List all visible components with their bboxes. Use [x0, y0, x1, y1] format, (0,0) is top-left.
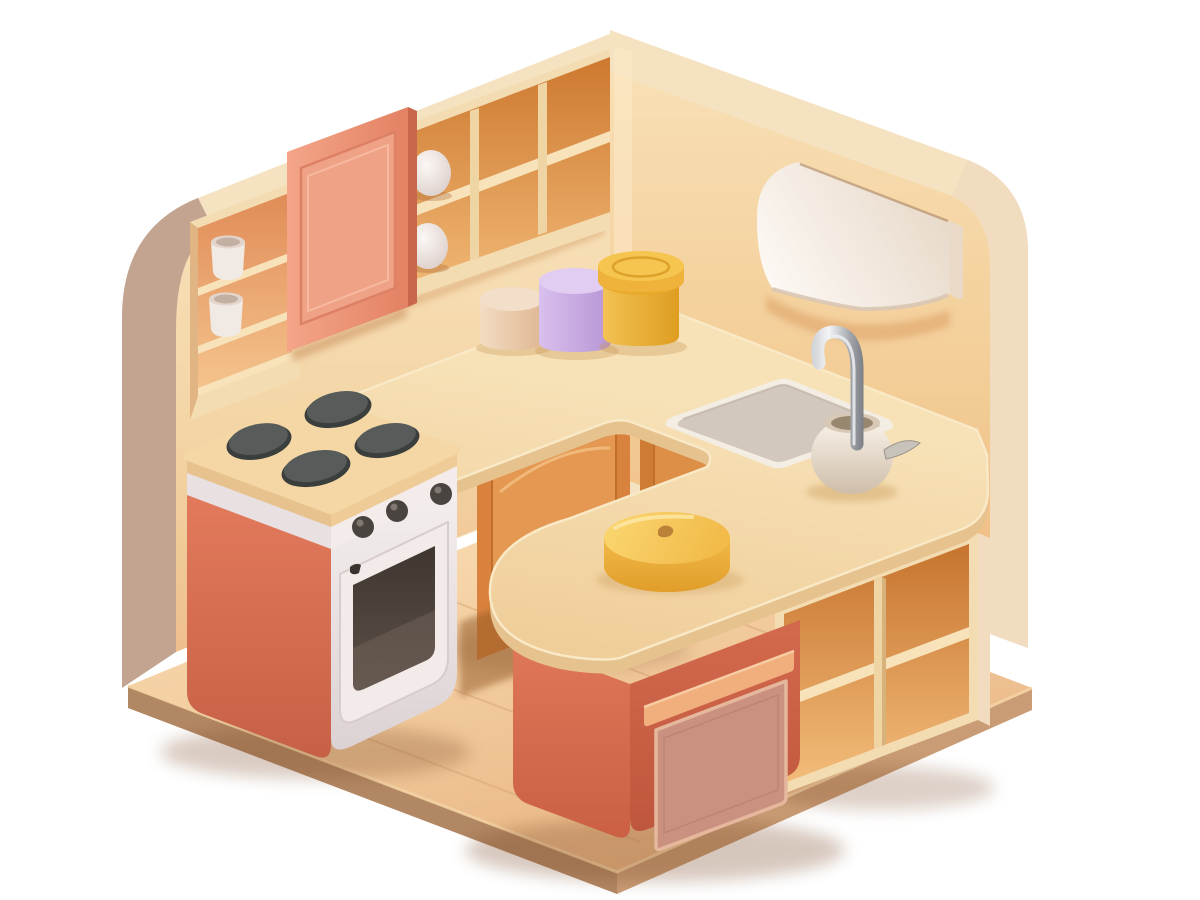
- wall-cabinet-door: [287, 107, 417, 356]
- cubby-side-panel: [978, 533, 990, 726]
- hood-side-face: [950, 221, 963, 299]
- knob: [352, 516, 374, 538]
- knob-highlight: [357, 520, 364, 527]
- cake-top: [604, 512, 730, 564]
- knob: [386, 500, 408, 522]
- kitchen-scene-canvas: [0, 0, 1200, 900]
- stove-oven: [187, 385, 457, 757]
- kitchen-illustration: [0, 0, 1200, 900]
- wall-niche: [190, 180, 300, 420]
- canister-upper: [211, 236, 245, 281]
- canister-opening-inner: [214, 295, 238, 304]
- cubby-divider: [874, 577, 882, 749]
- knob-highlight: [391, 504, 398, 511]
- jar-yellow: [598, 251, 687, 356]
- canister-opening-inner: [216, 238, 240, 247]
- knob: [430, 483, 452, 505]
- door-side-edge: [408, 107, 417, 307]
- cubby-divider-2: [538, 82, 547, 235]
- cubby-divider-1: [470, 108, 479, 261]
- canister-lower: [209, 293, 243, 338]
- niche-left-reveal: [190, 222, 198, 420]
- cubby-divider-shade: [882, 577, 886, 746]
- knob-highlight: [435, 487, 442, 494]
- jar-top: [480, 287, 544, 311]
